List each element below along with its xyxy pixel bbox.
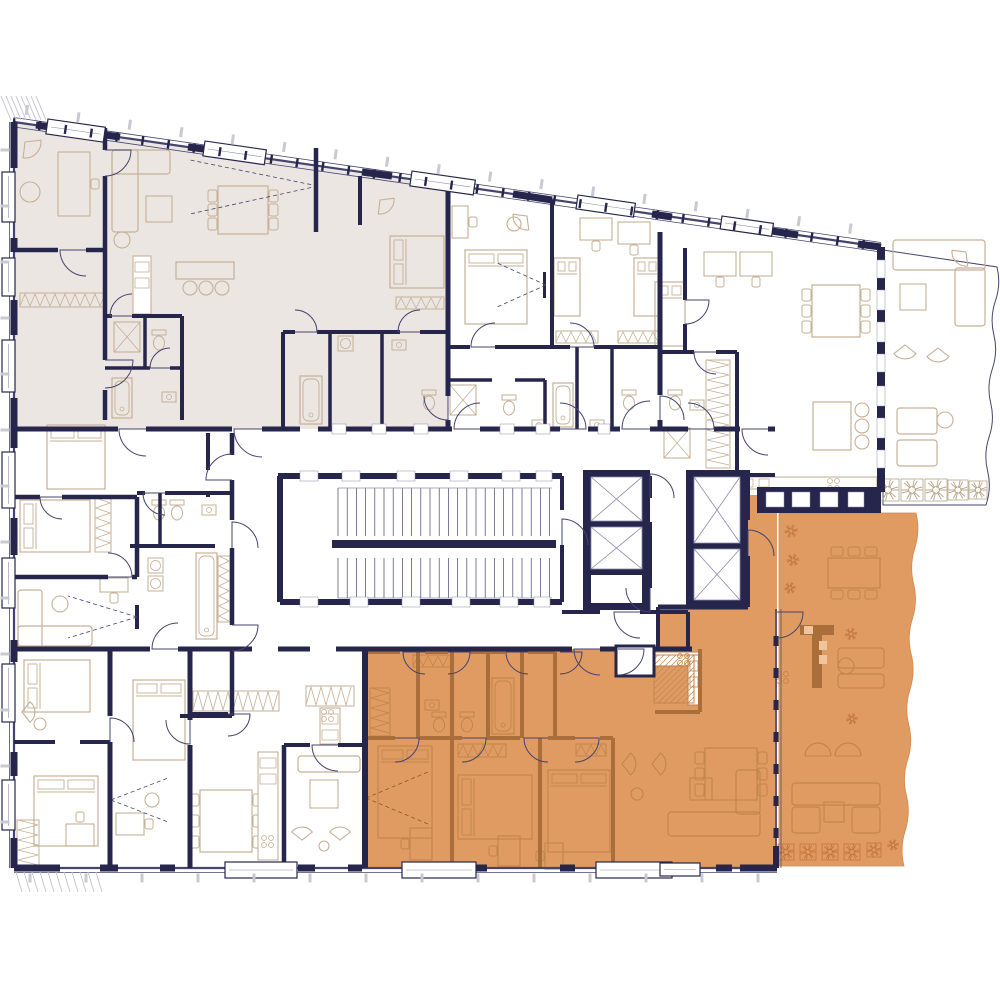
staircase <box>332 488 556 598</box>
elevator-shafts <box>583 470 748 610</box>
floor-plan-stage <box>0 0 1000 1000</box>
floor-plan <box>0 0 1000 1000</box>
